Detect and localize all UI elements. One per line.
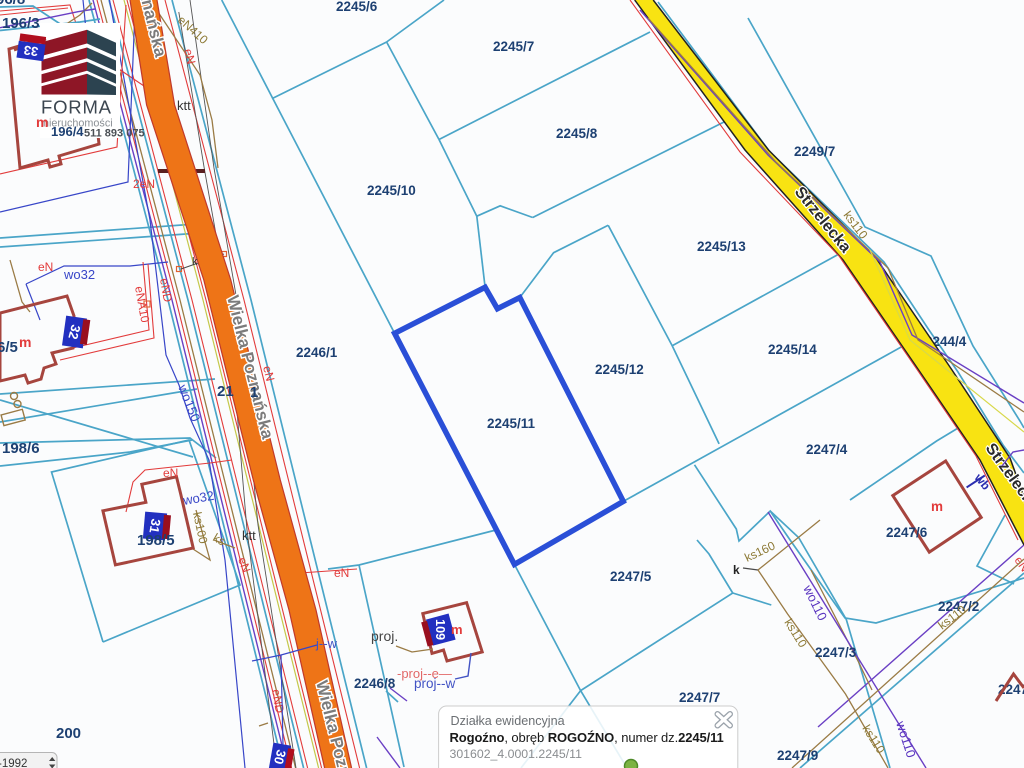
svg-text:Działka ewidencyjna: Działka ewidencyjna <box>451 714 565 728</box>
svg-text:6/5: 6/5 <box>0 339 18 356</box>
svg-text:m: m <box>931 499 943 514</box>
svg-text:1: 1 <box>250 384 258 401</box>
svg-text:2245/6: 2245/6 <box>336 0 378 14</box>
svg-text:m: m <box>19 334 31 350</box>
svg-text:2247/7: 2247/7 <box>679 690 720 705</box>
svg-text:2245/14: 2245/14 <box>768 342 817 357</box>
svg-text:2247/9: 2247/9 <box>777 748 818 763</box>
svg-text:ktt: ktt <box>242 528 256 543</box>
svg-text:m: m <box>451 622 463 637</box>
svg-text:2247/6: 2247/6 <box>886 525 928 540</box>
svg-text:2245/12: 2245/12 <box>595 362 644 377</box>
svg-text:2245/8: 2245/8 <box>556 126 598 141</box>
svg-text:2246/8: 2246/8 <box>354 676 396 691</box>
svg-text:198/5: 198/5 <box>137 532 175 549</box>
svg-text:2247/5: 2247/5 <box>610 569 652 584</box>
svg-text:j--w: j--w <box>315 636 338 651</box>
svg-text:2246/1: 2246/1 <box>296 345 338 360</box>
svg-text:proj.: proj. <box>371 628 398 644</box>
svg-text:196/4: 196/4 <box>51 124 84 139</box>
svg-text:k: k <box>192 256 198 268</box>
svg-text:wo32: wo32 <box>63 267 95 282</box>
svg-text:196/3: 196/3 <box>2 15 40 32</box>
svg-text:eN: eN <box>38 260 53 274</box>
svg-text:k: k <box>733 563 740 577</box>
svg-text:198/6: 198/6 <box>2 440 40 457</box>
svg-text:2245/11: 2245/11 <box>487 416 536 431</box>
svg-text:FORMA: FORMA <box>41 97 112 118</box>
svg-text:eN: eN <box>334 566 349 580</box>
svg-text:96/8: 96/8 <box>0 0 25 8</box>
svg-text:33: 33 <box>23 43 39 60</box>
svg-text:proj--w: proj--w <box>414 676 456 691</box>
svg-text:m: m <box>36 114 48 130</box>
svg-text:2245/13: 2245/13 <box>697 239 746 254</box>
svg-text:2249/7: 2249/7 <box>794 144 835 159</box>
svg-text:109: 109 <box>433 619 447 640</box>
svg-text:2247/3: 2247/3 <box>815 645 857 660</box>
svg-text:200: 200 <box>56 725 81 742</box>
svg-text:Rogoźno, obręb ROGOŹNO, numer: Rogoźno, obręb ROGOŹNO, numer dz.2245/11 <box>450 730 724 745</box>
svg-text:eN: eN <box>163 466 178 480</box>
svg-text:2245/10: 2245/10 <box>367 183 416 198</box>
svg-text:301602_4.0001.2245/11: 301602_4.0001.2245/11 <box>450 747 583 761</box>
svg-text:2245/7: 2245/7 <box>493 39 534 54</box>
svg-text:511 893 075: 511 893 075 <box>84 128 145 140</box>
svg-text:2eN: 2eN <box>133 177 155 191</box>
svg-text:-1992: -1992 <box>0 758 27 768</box>
svg-text:ktt: ktt <box>177 98 191 113</box>
svg-text:2247/4: 2247/4 <box>806 442 848 457</box>
svg-text:21: 21 <box>217 383 234 400</box>
